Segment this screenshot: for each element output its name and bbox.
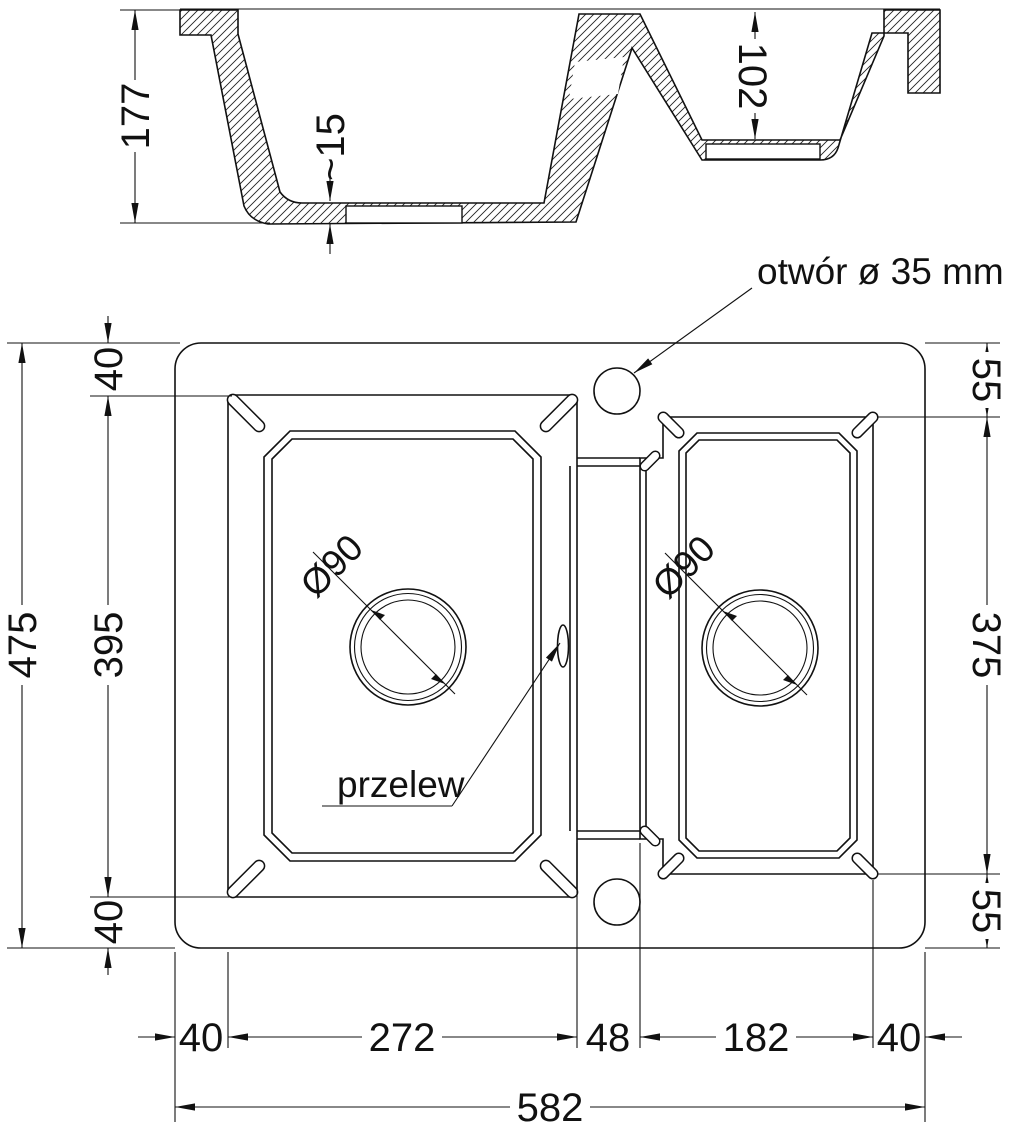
divider-bridge bbox=[577, 458, 646, 839]
dim-depth-small: 102 bbox=[730, 43, 774, 110]
page: { "title": "kitchen sink technical drawi… bbox=[0, 0, 1011, 1131]
right-drain-recess bbox=[706, 144, 820, 159]
overflow-label: przelew bbox=[337, 764, 465, 805]
dims-bottom: 40 272 48 182 40 582 bbox=[138, 843, 962, 1130]
dims-left: 475 40 395 40 bbox=[1, 316, 232, 975]
dim-right-bowl-width: 182 bbox=[723, 1016, 790, 1060]
overflow-callout: przelew bbox=[322, 643, 560, 806]
drain-right-label: Ø90 bbox=[645, 528, 723, 606]
dim-total-height: 475 bbox=[1, 612, 45, 679]
dim-bowl-height: 395 bbox=[87, 612, 131, 679]
section-material bbox=[180, 10, 940, 224]
section-break-gap bbox=[569, 57, 624, 99]
plan-view: Ø90 Ø90 otwór ø 35 mm przelew bbox=[175, 251, 1004, 948]
dim-right-margin: 40 bbox=[877, 1016, 922, 1060]
dim-floor-thickness: ~15 bbox=[309, 113, 353, 181]
drain-right: Ø90 bbox=[645, 528, 818, 706]
overflow-hole bbox=[558, 625, 569, 667]
dim-bowl-width: 272 bbox=[369, 1016, 436, 1060]
left-drain-recess bbox=[346, 206, 462, 223]
drain-left: Ø90 bbox=[293, 527, 466, 705]
dim-left-margin: 40 bbox=[179, 1016, 224, 1060]
right-bowl bbox=[638, 410, 880, 881]
dim-right-bottom-margin: 55 bbox=[964, 889, 1008, 934]
dim-bottom-margin: 40 bbox=[87, 900, 131, 945]
drain-left-label: Ø90 bbox=[293, 527, 371, 605]
dim-top-margin: 40 bbox=[87, 347, 131, 392]
dim-divider-width: 48 bbox=[586, 1016, 631, 1060]
faucet-hole-label: otwór ø 35 mm bbox=[757, 251, 1004, 292]
dims-right: 55 375 55 bbox=[878, 343, 1008, 948]
dim-total-width: 582 bbox=[517, 1086, 584, 1130]
dim-right-top-margin: 55 bbox=[964, 358, 1008, 403]
left-bowl bbox=[225, 392, 580, 900]
dim-right-bowl-height: 375 bbox=[964, 612, 1008, 679]
section-view: 177 ~15 102 bbox=[114, 9, 940, 254]
faucet-hole-callout: otwór ø 35 mm bbox=[634, 251, 1004, 373]
dim-depth-main: 177 bbox=[114, 83, 158, 150]
faucet-hole-bottom bbox=[594, 879, 640, 925]
faucet-hole-top bbox=[594, 368, 640, 414]
sink-technical-drawing: 177 ~15 102 bbox=[0, 0, 1011, 1131]
